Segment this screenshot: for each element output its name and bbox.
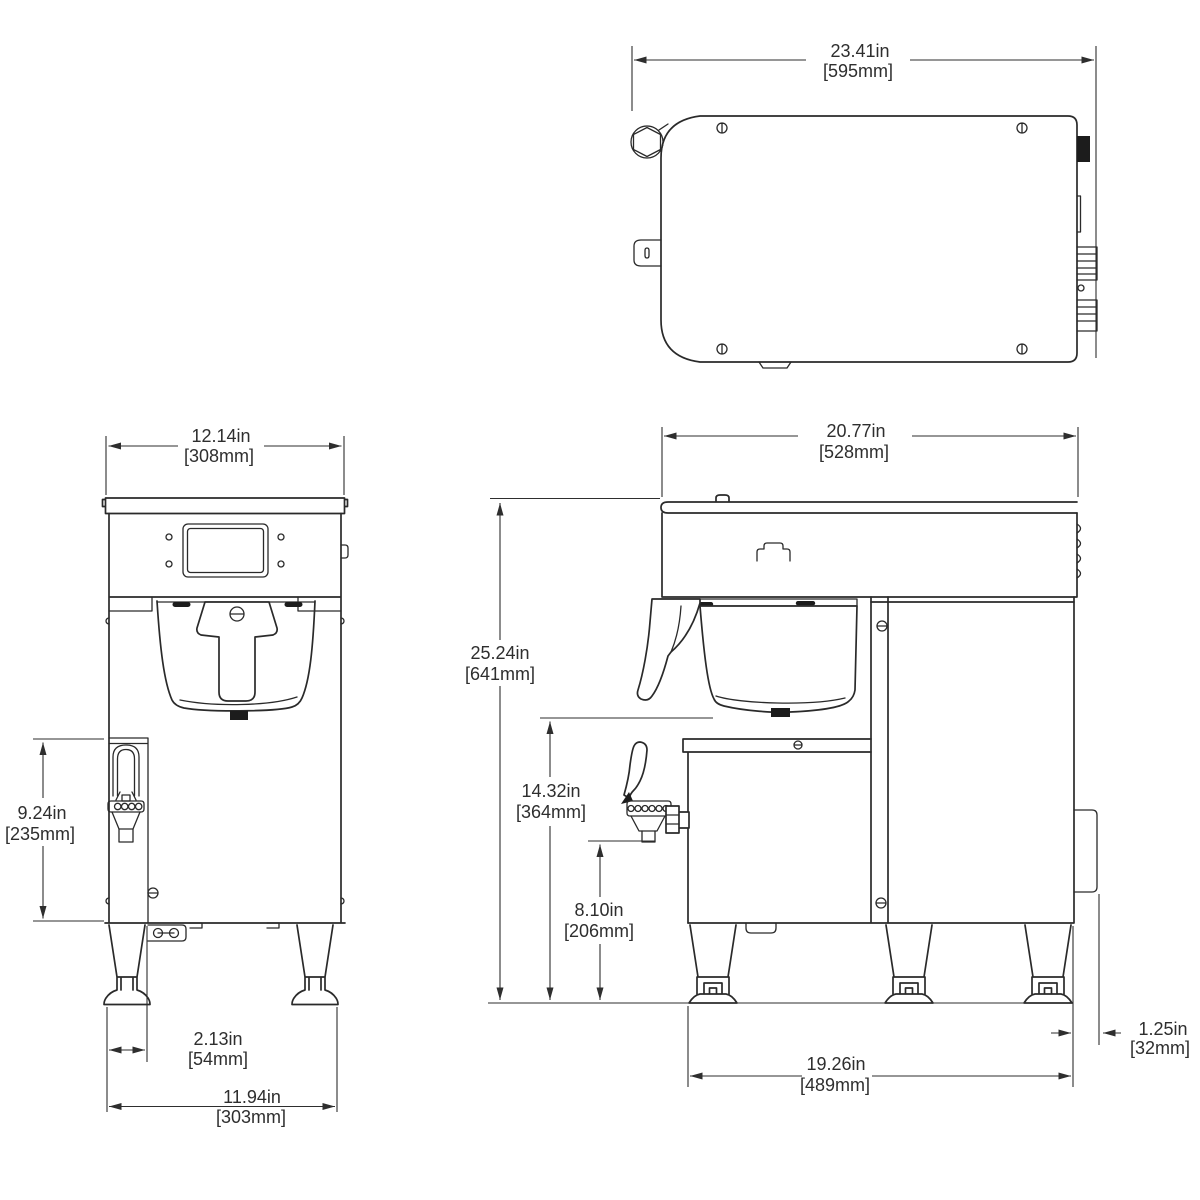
front-lid [103, 498, 348, 514]
side-funnel-drip [771, 708, 790, 717]
dim-label-mm: [364mm] [516, 802, 586, 822]
side-faucet-spout [642, 831, 655, 842]
front-faucet-taper [112, 812, 140, 829]
side-faucet-lever [624, 742, 647, 798]
dim-label-mm: [308mm] [184, 446, 254, 466]
dim-front-faucet-height: 9.24in [235mm] [5, 743, 75, 919]
dimensions: 23.41in [595mm] 12.14in [308mm] 9.24in [… [5, 41, 1190, 1127]
front-right-edge-switch [341, 545, 348, 558]
dim-label-in: 11.94in [223, 1087, 281, 1107]
side-server-body [683, 739, 871, 923]
dim-label-mm: [54mm] [188, 1049, 248, 1069]
top-view [631, 116, 1097, 368]
dim-label-in: 14.32in [521, 781, 580, 801]
dim-label-in: 9.24in [17, 803, 66, 823]
dim-label-in: 2.13in [193, 1029, 242, 1049]
side-leg-front [689, 925, 737, 1003]
side-head-box [662, 513, 1077, 602]
side-faucet-bonnet [627, 801, 671, 816]
front-funnel-handle [197, 602, 277, 701]
front-faucet-ears [116, 792, 136, 801]
front-view [103, 498, 349, 1005]
top-view-vent-ribs-lower [1077, 300, 1097, 331]
top-view-power-block [1077, 136, 1090, 162]
top-view-rib-dot [1078, 285, 1084, 291]
side-faucet-taper [631, 816, 665, 831]
dim-side-depth: 20.77in [528mm] [664, 421, 1076, 462]
dim-side-base-depth: 19.26in [489mm] [690, 1054, 1071, 1095]
top-view-screws [717, 123, 1027, 354]
front-faucet-spout [119, 829, 133, 842]
side-leg-middle [885, 925, 933, 1003]
dimension-drawing-page: 23.41in [595mm] 12.14in [308mm] 9.24in [… [0, 0, 1200, 1200]
top-view-inlet-fitting [631, 124, 668, 158]
side-leg-rear [1024, 925, 1072, 1003]
dim-label-in: 23.41in [830, 41, 889, 61]
dim-front-base-width: 11.94in [303mm] [109, 1087, 335, 1127]
dim-label-in: 12.14in [191, 426, 250, 446]
front-drain-latch [148, 925, 186, 941]
dim-label-in: 25.24in [470, 643, 529, 663]
front-display-screen [183, 524, 268, 577]
dim-label-in: 1.25in [1138, 1019, 1187, 1039]
side-tower-screws [876, 621, 887, 908]
top-view-extension-lines [632, 46, 1096, 358]
front-leg-right [292, 925, 338, 1005]
front-faucet-dome [113, 745, 139, 796]
top-view-body-outline [661, 116, 1077, 362]
front-body-sides [105, 514, 345, 924]
front-panel-screw [148, 888, 158, 898]
side-rear-protrusion [1074, 810, 1097, 892]
front-faucet-bonnet [108, 801, 144, 812]
top-view-bottom-tab [759, 362, 791, 368]
dim-label-in: 20.77in [826, 421, 885, 441]
dim-side-spout-height: 8.10in [206mm] [564, 845, 634, 1001]
top-view-vent-ribs-upper [1077, 247, 1097, 280]
dim-side-mid-height: 14.32in [364mm] [516, 722, 586, 1001]
top-view-side-tab [634, 240, 661, 266]
side-view-extension-lines [488, 427, 1099, 1087]
dim-label-in: 8.10in [574, 900, 623, 920]
dim-label-in: 19.26in [806, 1054, 865, 1074]
dim-label-mm: [206mm] [564, 921, 634, 941]
side-lid [661, 495, 1077, 513]
dim-label-mm: [32mm] [1130, 1038, 1190, 1058]
dim-side-rear-offset: 1.25in [32mm] [1051, 1019, 1190, 1058]
front-faucet-compartment [109, 738, 148, 923]
side-base-tab [746, 923, 776, 933]
side-head-clip [757, 543, 790, 561]
side-funnel-handle [637, 599, 700, 700]
front-display-screen-inner [188, 529, 264, 573]
dim-label-mm: [528mm] [819, 442, 889, 462]
dim-front-width: 12.14in [308mm] [109, 426, 342, 466]
dim-front-faucet-offset: 2.13in [54mm] [109, 1029, 248, 1069]
dim-label-mm: [235mm] [5, 824, 75, 844]
front-indicator-dots [166, 534, 284, 567]
side-faucet-coupler [666, 806, 689, 833]
front-funnel-drip [230, 711, 248, 720]
dim-label-mm: [489mm] [800, 1075, 870, 1095]
front-leg-left [104, 925, 150, 1005]
side-view [621, 495, 1097, 1003]
brewer-dimension-drawing: 23.41in [595mm] 12.14in [308mm] 9.24in [… [0, 0, 1200, 1200]
dim-label-mm: [641mm] [465, 664, 535, 684]
front-view-extension-lines [33, 436, 344, 1112]
dim-top-width: 23.41in [595mm] [634, 41, 1094, 81]
side-server-screw [794, 741, 802, 749]
dim-label-mm: [595mm] [823, 61, 893, 81]
dim-side-height: 25.24in [641mm] [465, 503, 535, 1000]
dim-label-mm: [303mm] [216, 1107, 286, 1127]
side-funnel-bowl [700, 606, 857, 712]
